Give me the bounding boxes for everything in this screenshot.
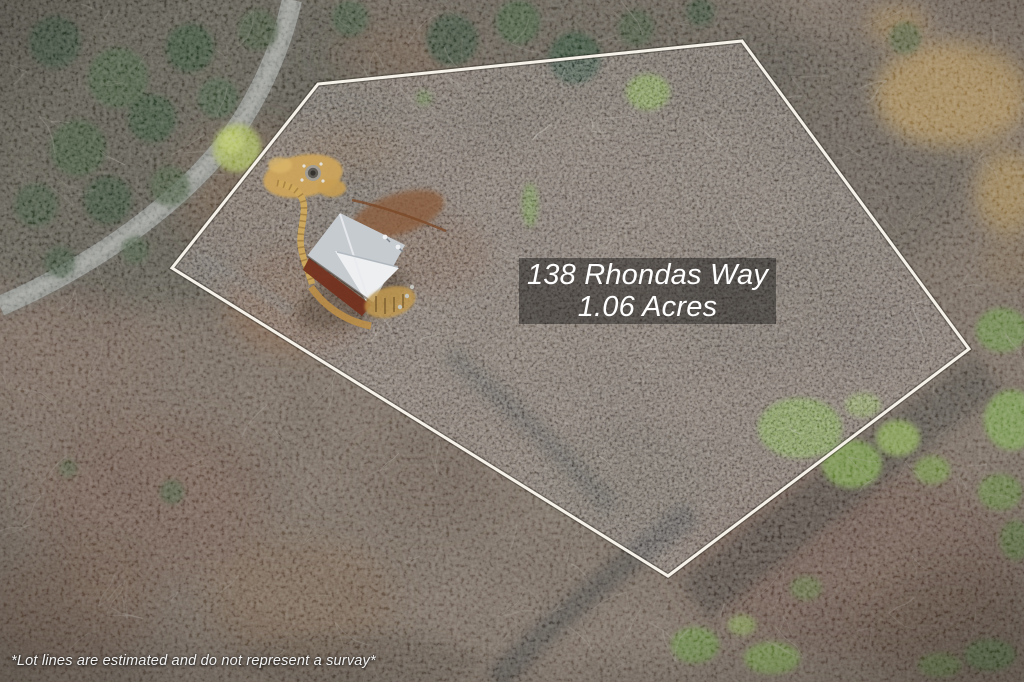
aerial-lot-photo: 138 Rhondas Way 1.06 Acres *Lot lines ar… (0, 0, 1024, 682)
aerial-photo-canvas (0, 0, 1024, 682)
vignette (0, 0, 1024, 682)
lot-address: 138 Rhondas Way (519, 259, 776, 291)
lot-lines-disclaimer: *Lot lines are estimated and do not repr… (11, 653, 376, 669)
lot-acreage: 1.06 Acres (519, 291, 776, 323)
lot-info-overlay: 138 Rhondas Way 1.06 Acres (519, 258, 776, 324)
